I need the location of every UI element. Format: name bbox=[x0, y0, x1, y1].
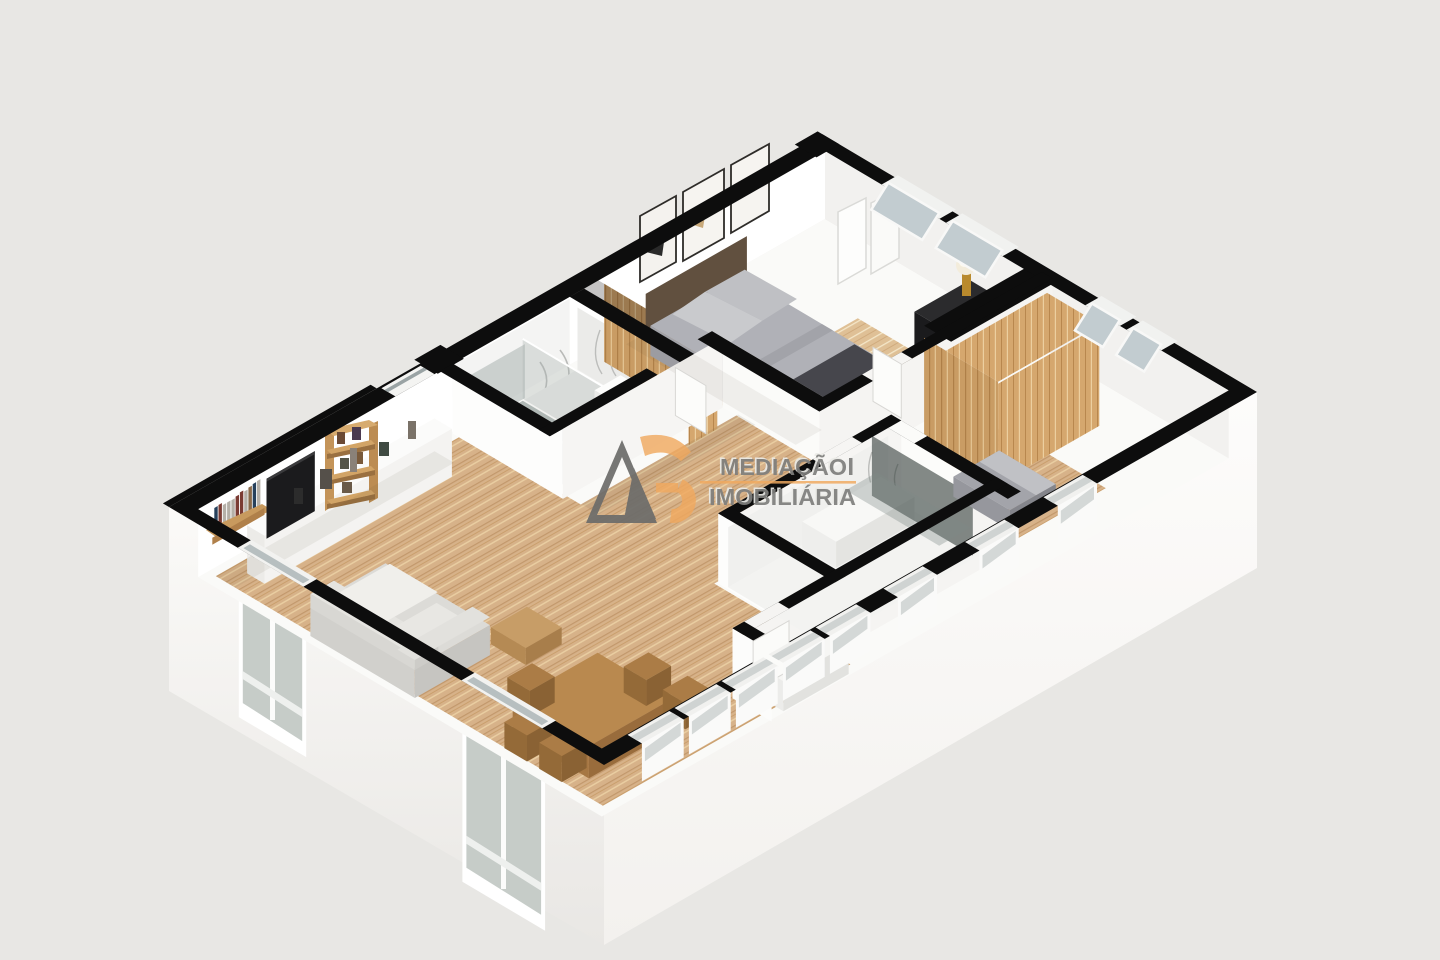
svg-text:IMOBILIÁRIA: IMOBILIÁRIA bbox=[709, 483, 856, 510]
svg-text:MEDIAÇÃO: MEDIAÇÃO bbox=[720, 453, 847, 480]
